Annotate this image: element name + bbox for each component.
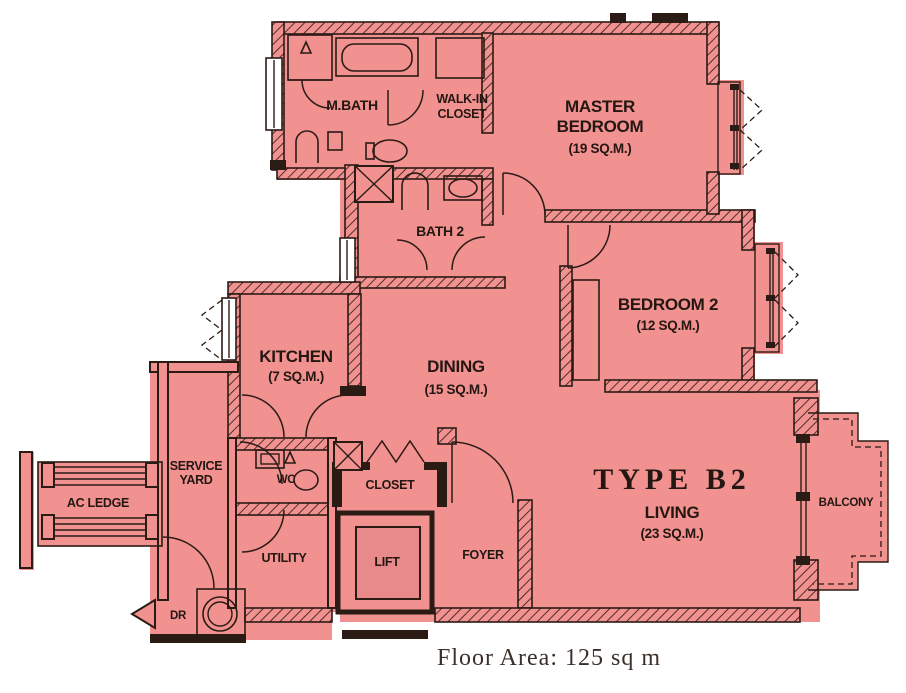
master-bedroom-area: (19 SQ.M.) [568,141,631,156]
closet-label: CLOSET [366,478,416,492]
mbath-window [266,58,282,130]
walkin-label2: CLOSET [438,107,488,121]
master-bedroom-label: MASTER [565,97,635,116]
kitchen-label: KITCHEN [259,347,332,366]
bath2-window [340,238,355,282]
floor-plan-page: MASTER BEDROOM (19 SQ.M.) M.BATH WALK-IN… [0,0,906,693]
mbath-label: M.BATH [326,97,378,113]
kitchen-area: (7 SQ.M.) [268,369,324,384]
living-label: LIVING [645,503,700,522]
ac-ledge-label: AC LEDGE [67,496,129,510]
wardrobe-x2-icon [334,442,362,470]
balcony-label: BALCONY [819,497,874,509]
bedroom2-area: (12 SQ.M.) [636,318,699,333]
dr-label: DR [170,610,187,622]
dining-label: DINING [427,357,485,376]
living-area: (23 SQ.M.) [640,526,703,541]
foyer-label: FOYER [462,548,504,562]
service-yard-label2: YARD [179,473,212,487]
service-yard-label: SERVICE [170,459,223,473]
dining-area: (15 SQ.M.) [424,382,487,397]
utility-label: UTILITY [261,551,307,565]
master-bedroom-label2: BEDROOM [557,117,644,136]
walkin-label: WALK-IN [436,92,488,106]
bedroom2-label: BEDROOM 2 [618,295,718,314]
floor-plan-svg: MASTER BEDROOM (19 SQ.M.) M.BATH WALK-IN… [0,0,906,693]
wc-label: WC [277,474,296,486]
lift-label: LIFT [374,555,400,569]
type-label: TYPE B2 [593,463,751,496]
bath2-label: BATH 2 [416,223,464,239]
wardrobe-x-icon [355,166,393,202]
entry-arrow-icon [132,600,155,628]
kitchen-window [202,298,236,360]
floor-area-caption: Floor Area: 125 sq m [437,645,661,671]
